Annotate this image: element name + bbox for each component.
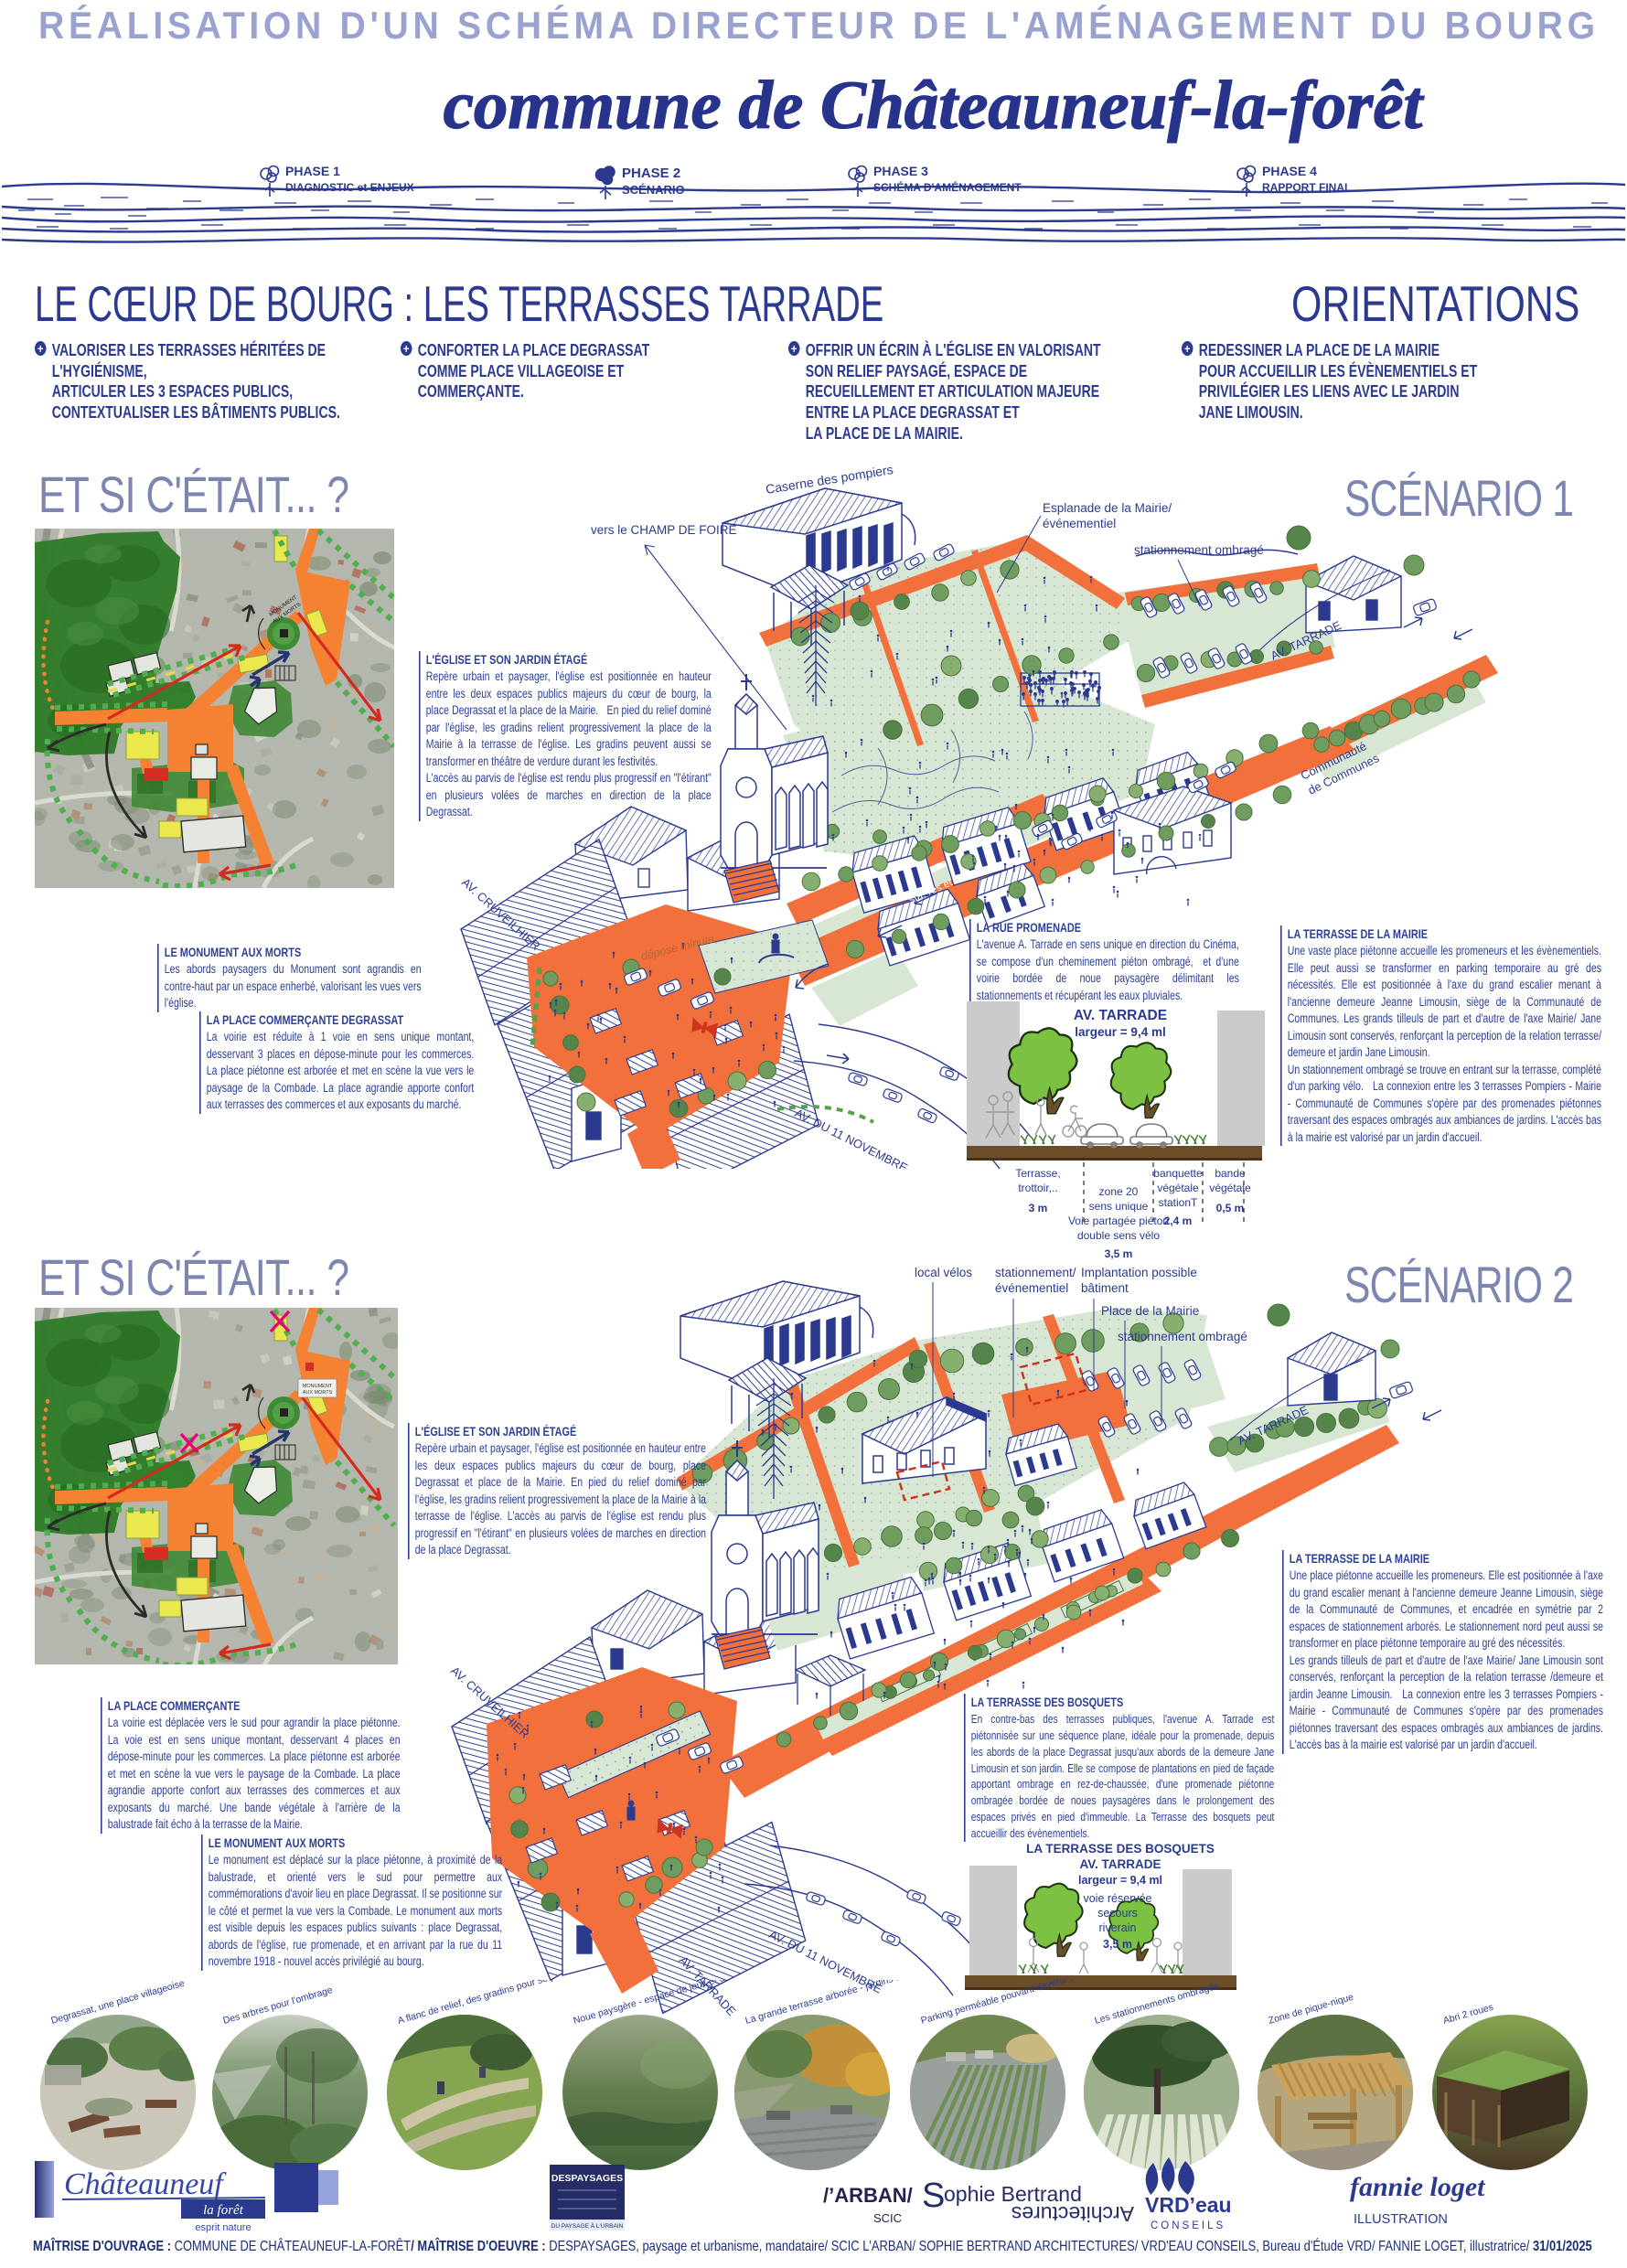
svg-text:VRD’eau: VRD’eau — [1145, 2193, 1232, 2217]
svg-text:Voie partagée piéton: Voie partagée piéton — [1068, 1214, 1169, 1227]
svg-text:Implantation possible: Implantation possible — [1081, 1266, 1197, 1279]
svg-text:/’ARBAN/: /’ARBAN/ — [823, 2184, 913, 2207]
svg-text:largeur = 9,4 ml: largeur = 9,4 ml — [1075, 1025, 1165, 1039]
svg-text:SCÉNARIO: SCÉNARIO — [622, 183, 685, 197]
svg-text:3,5 m: 3,5 m — [1105, 1247, 1133, 1260]
svg-text:Terrasse,: Terrasse, — [1015, 1167, 1060, 1180]
svg-text:DU PAYSAGE À L'URBAIN: DU PAYSAGE À L'URBAIN — [551, 2221, 624, 2230]
svg-text:largeur = 9,4 ml: largeur = 9,4 ml — [1078, 1874, 1162, 1887]
svg-text:Place de la Mairie: Place de la Mairie — [1101, 1304, 1199, 1318]
svg-text:voie réservée: voie réservée — [1083, 1892, 1151, 1905]
svg-text:S: S — [922, 2177, 945, 2215]
svg-text:stationnement ombragé: stationnement ombragé — [1118, 1330, 1247, 1343]
svg-text:banquette: banquette — [1153, 1167, 1203, 1180]
svg-text:secours: secours — [1097, 1907, 1138, 1920]
svg-text:Esplanade de la Mairie/: Esplanade de la Mairie/ — [1043, 501, 1172, 515]
svg-text:vers le CHAMP DE FOIRE: vers le CHAMP DE FOIRE — [591, 523, 737, 537]
svg-text:RAPPORT FINAL: RAPPORT FINAL — [1262, 181, 1351, 194]
svg-text:Châteauneuf: Châteauneuf — [64, 2167, 227, 2201]
svg-text:PHASE 3: PHASE 3 — [873, 164, 928, 178]
svg-text:DESPAYSAGES: DESPAYSAGES — [551, 2173, 623, 2184]
svg-text:CONSEILS: CONSEILS — [1151, 2220, 1226, 2231]
svg-text:SCHÉMA D'AMÉNAGEMENT: SCHÉMA D'AMÉNAGEMENT — [873, 180, 1022, 194]
svg-text:trottoir,..: trottoir,.. — [1018, 1182, 1057, 1194]
svg-text:riverain: riverain — [1099, 1921, 1137, 1934]
svg-text:AV. TARRADE: AV. TARRADE — [1079, 1857, 1161, 1871]
svg-text:MONUMENT: MONUMENT — [303, 1384, 333, 1389]
svg-text:LA TERRASSE DES BOSQUETS: LA TERRASSE DES BOSQUETS — [1026, 1842, 1215, 1856]
svg-text:PHASE 1: PHASE 1 — [285, 164, 340, 178]
svg-text:3,5 m: 3,5 m — [1103, 1938, 1132, 1951]
svg-text:bande: bande — [1215, 1167, 1246, 1180]
svg-text:fannie loget: fannie loget — [1350, 2172, 1486, 2202]
svg-text:0,5 m: 0,5 m — [1216, 1202, 1245, 1214]
svg-text:stationnement/: stationnement/ — [995, 1266, 1076, 1279]
svg-text:AUX MORTS: AUX MORTS — [303, 1390, 333, 1396]
svg-text:PHASE 4: PHASE 4 — [1262, 164, 1317, 178]
svg-text:2,4 m: 2,4 m — [1164, 1214, 1193, 1227]
svg-text:événementiel: événementiel — [995, 1281, 1068, 1295]
svg-text:PHASE 2: PHASE 2 — [622, 166, 680, 181]
svg-text:stationnement ombragé: stationnement ombragé — [1134, 543, 1264, 557]
svg-text:Architectures: Architectures — [1012, 2202, 1134, 2226]
svg-text:ILLUSTRATION: ILLUSTRATION — [1354, 2212, 1448, 2227]
svg-text:bâtiment: bâtiment — [1081, 1281, 1129, 1295]
svg-text:local vélos: local vélos — [915, 1266, 972, 1279]
svg-text:AV. DU 11 NOVEMBRE: AV. DU 11 NOVEMBRE — [793, 1106, 911, 1169]
svg-text:événementiel: événementiel — [1043, 517, 1116, 530]
svg-text:SCIC: SCIC — [873, 2211, 902, 2225]
svg-text:stationT: stationT — [1159, 1196, 1198, 1209]
svg-text:zone 20: zone 20 — [1099, 1185, 1139, 1198]
svg-text:végétale: végétale — [1157, 1182, 1199, 1194]
svg-text:3 m: 3 m — [1029, 1202, 1048, 1214]
svg-text:AV. TARRADE: AV. TARRADE — [1074, 1008, 1167, 1023]
svg-text:végétale: végétale — [1209, 1182, 1251, 1194]
svg-text:la forêt: la forêt — [203, 2203, 244, 2218]
svg-text:sens unique: sens unique — [1089, 1200, 1149, 1213]
svg-text:DIAGNOSTIC et ENJEUX: DIAGNOSTIC et ENJEUX — [285, 181, 414, 194]
svg-text:esprit nature: esprit nature — [195, 2222, 251, 2233]
svg-text:Parking perméable pouvant deve: Parking perméable pouvant devenir espace… — [920, 1980, 1165, 2027]
svg-text:double sens vélo: double sens vélo — [1077, 1229, 1160, 1242]
